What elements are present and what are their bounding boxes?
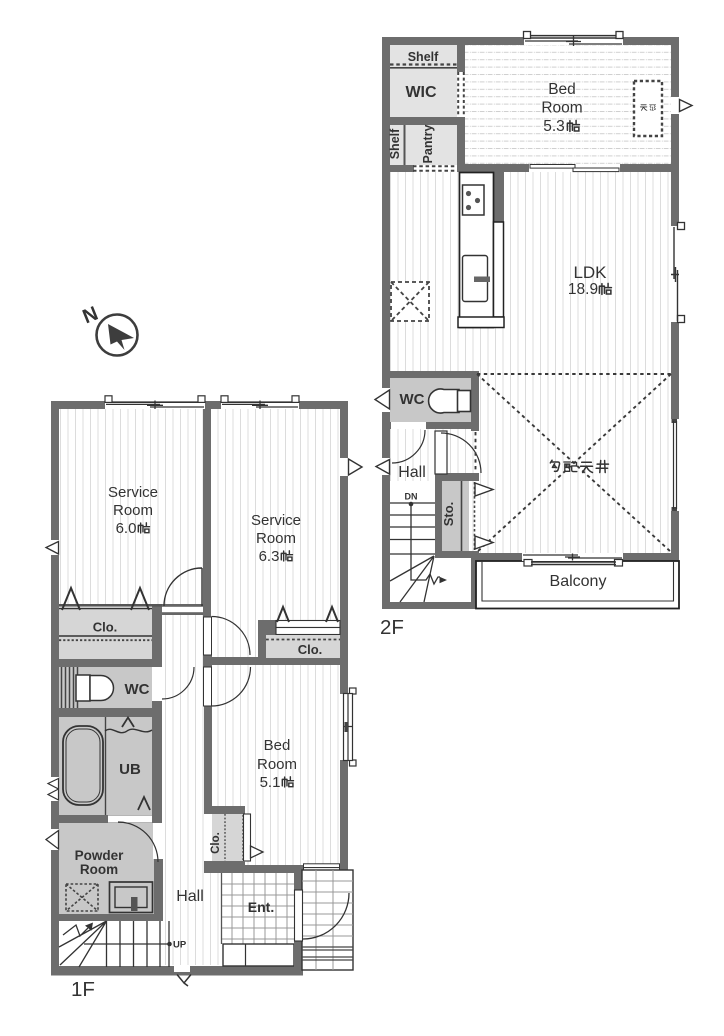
svg-text:2F: 2F <box>380 616 404 639</box>
svg-text:Room: Room <box>257 756 297 773</box>
svg-text:WC: WC <box>125 681 150 698</box>
svg-text:6.0: 6.0 <box>116 520 137 537</box>
svg-text:6.3: 6.3 <box>259 548 280 565</box>
svg-text:WC: WC <box>400 391 425 408</box>
svg-text:Hall: Hall <box>176 888 204 905</box>
svg-text:UP: UP <box>173 940 187 951</box>
svg-text:WIC: WIC <box>405 84 437 101</box>
svg-text:5.3: 5.3 <box>543 118 565 135</box>
svg-text:UB: UB <box>119 761 141 778</box>
svg-text:Bed: Bed <box>264 737 291 754</box>
svg-text:Bed: Bed <box>548 81 576 98</box>
svg-text:Room: Room <box>113 502 153 519</box>
svg-text:Hall: Hall <box>398 464 426 481</box>
svg-text:Balcony: Balcony <box>550 573 607 590</box>
svg-text:Room: Room <box>541 100 582 117</box>
svg-text:Service: Service <box>108 484 158 501</box>
svg-text:LDK: LDK <box>573 263 607 282</box>
svg-text:DN: DN <box>405 492 418 502</box>
svg-text:Ent.: Ent. <box>248 899 274 915</box>
svg-text:1F: 1F <box>71 978 95 1001</box>
svg-text:Room: Room <box>256 530 296 547</box>
svg-text:5.1: 5.1 <box>260 774 281 791</box>
svg-text:Clo.: Clo. <box>210 832 222 854</box>
svg-text:Service: Service <box>251 512 301 529</box>
svg-text:18.9: 18.9 <box>568 281 598 298</box>
svg-text:Sto.: Sto. <box>441 502 456 527</box>
svg-text:Clo.: Clo. <box>93 620 118 635</box>
svg-text:Shelf: Shelf <box>408 50 439 64</box>
svg-text:Room: Room <box>80 862 118 877</box>
svg-text:Pantry: Pantry <box>421 125 435 164</box>
svg-text:Clo.: Clo. <box>298 642 323 657</box>
svg-text:Powder: Powder <box>75 848 125 863</box>
svg-text:Shelf: Shelf <box>388 128 402 159</box>
